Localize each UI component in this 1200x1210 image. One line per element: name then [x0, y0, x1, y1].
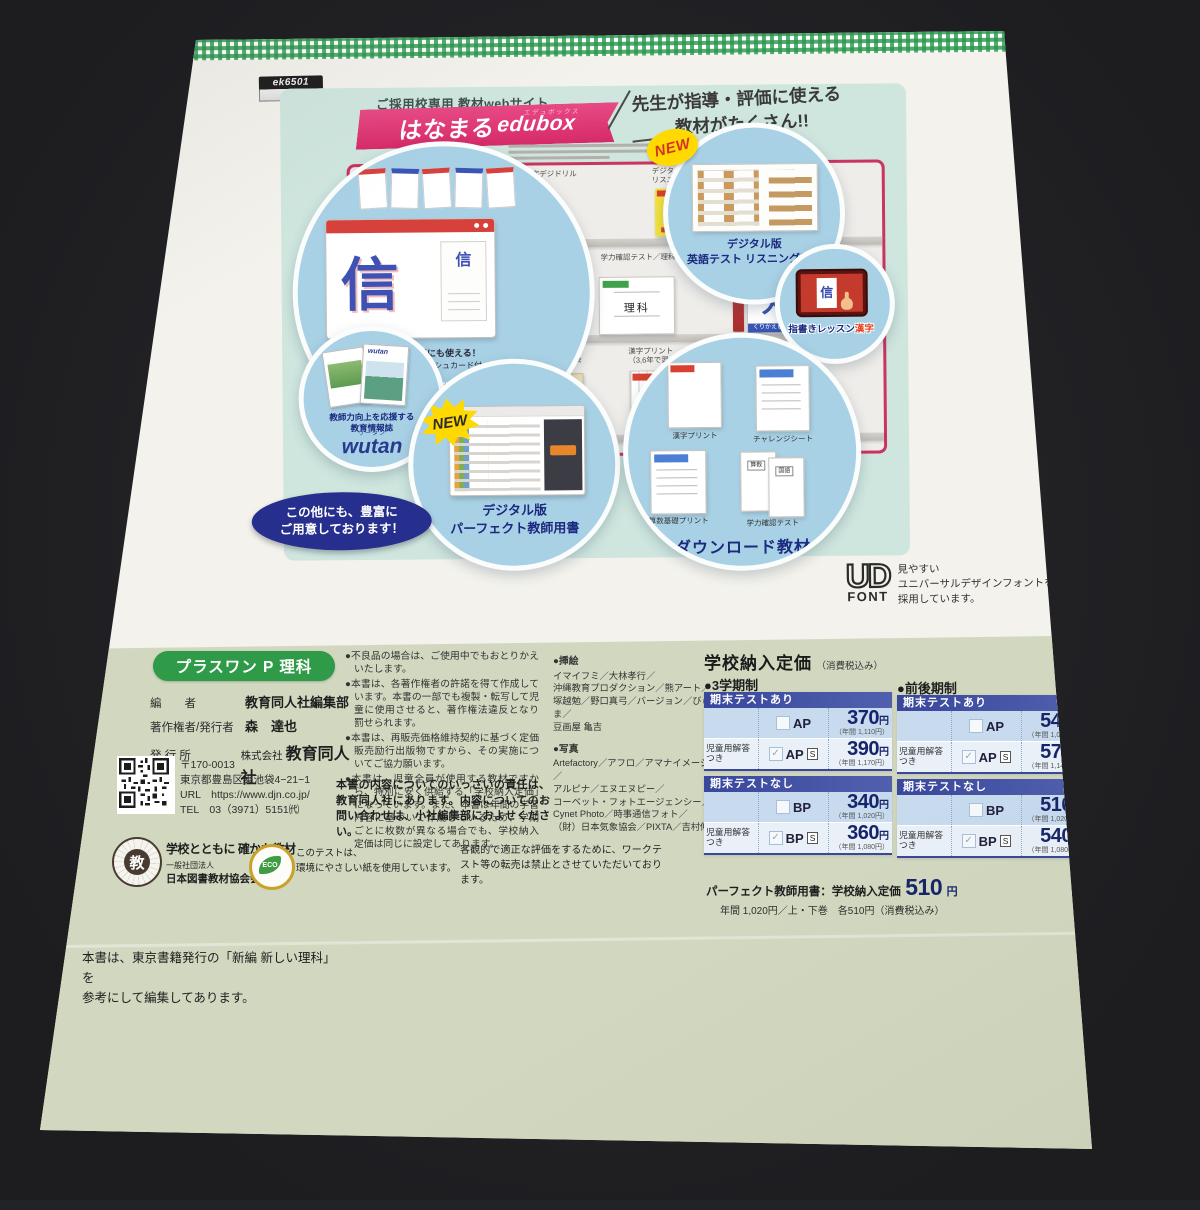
photo-background: ek6501 ご採用校専用 教材webサイト エデュボックス はなまる edub…: [0, 0, 1200, 1200]
yen: 円: [1072, 719, 1082, 730]
yen: 円: [1072, 803, 1082, 814]
yen: 円: [1072, 750, 1082, 761]
yen: 円: [1072, 834, 1082, 845]
workbook-back-cover: ek6501 ご採用校専用 教材webサイト エデュボックス はなまる edub…: [0, 0, 1200, 1200]
photo-lighting-overlay: [0, 0, 1200, 1200]
